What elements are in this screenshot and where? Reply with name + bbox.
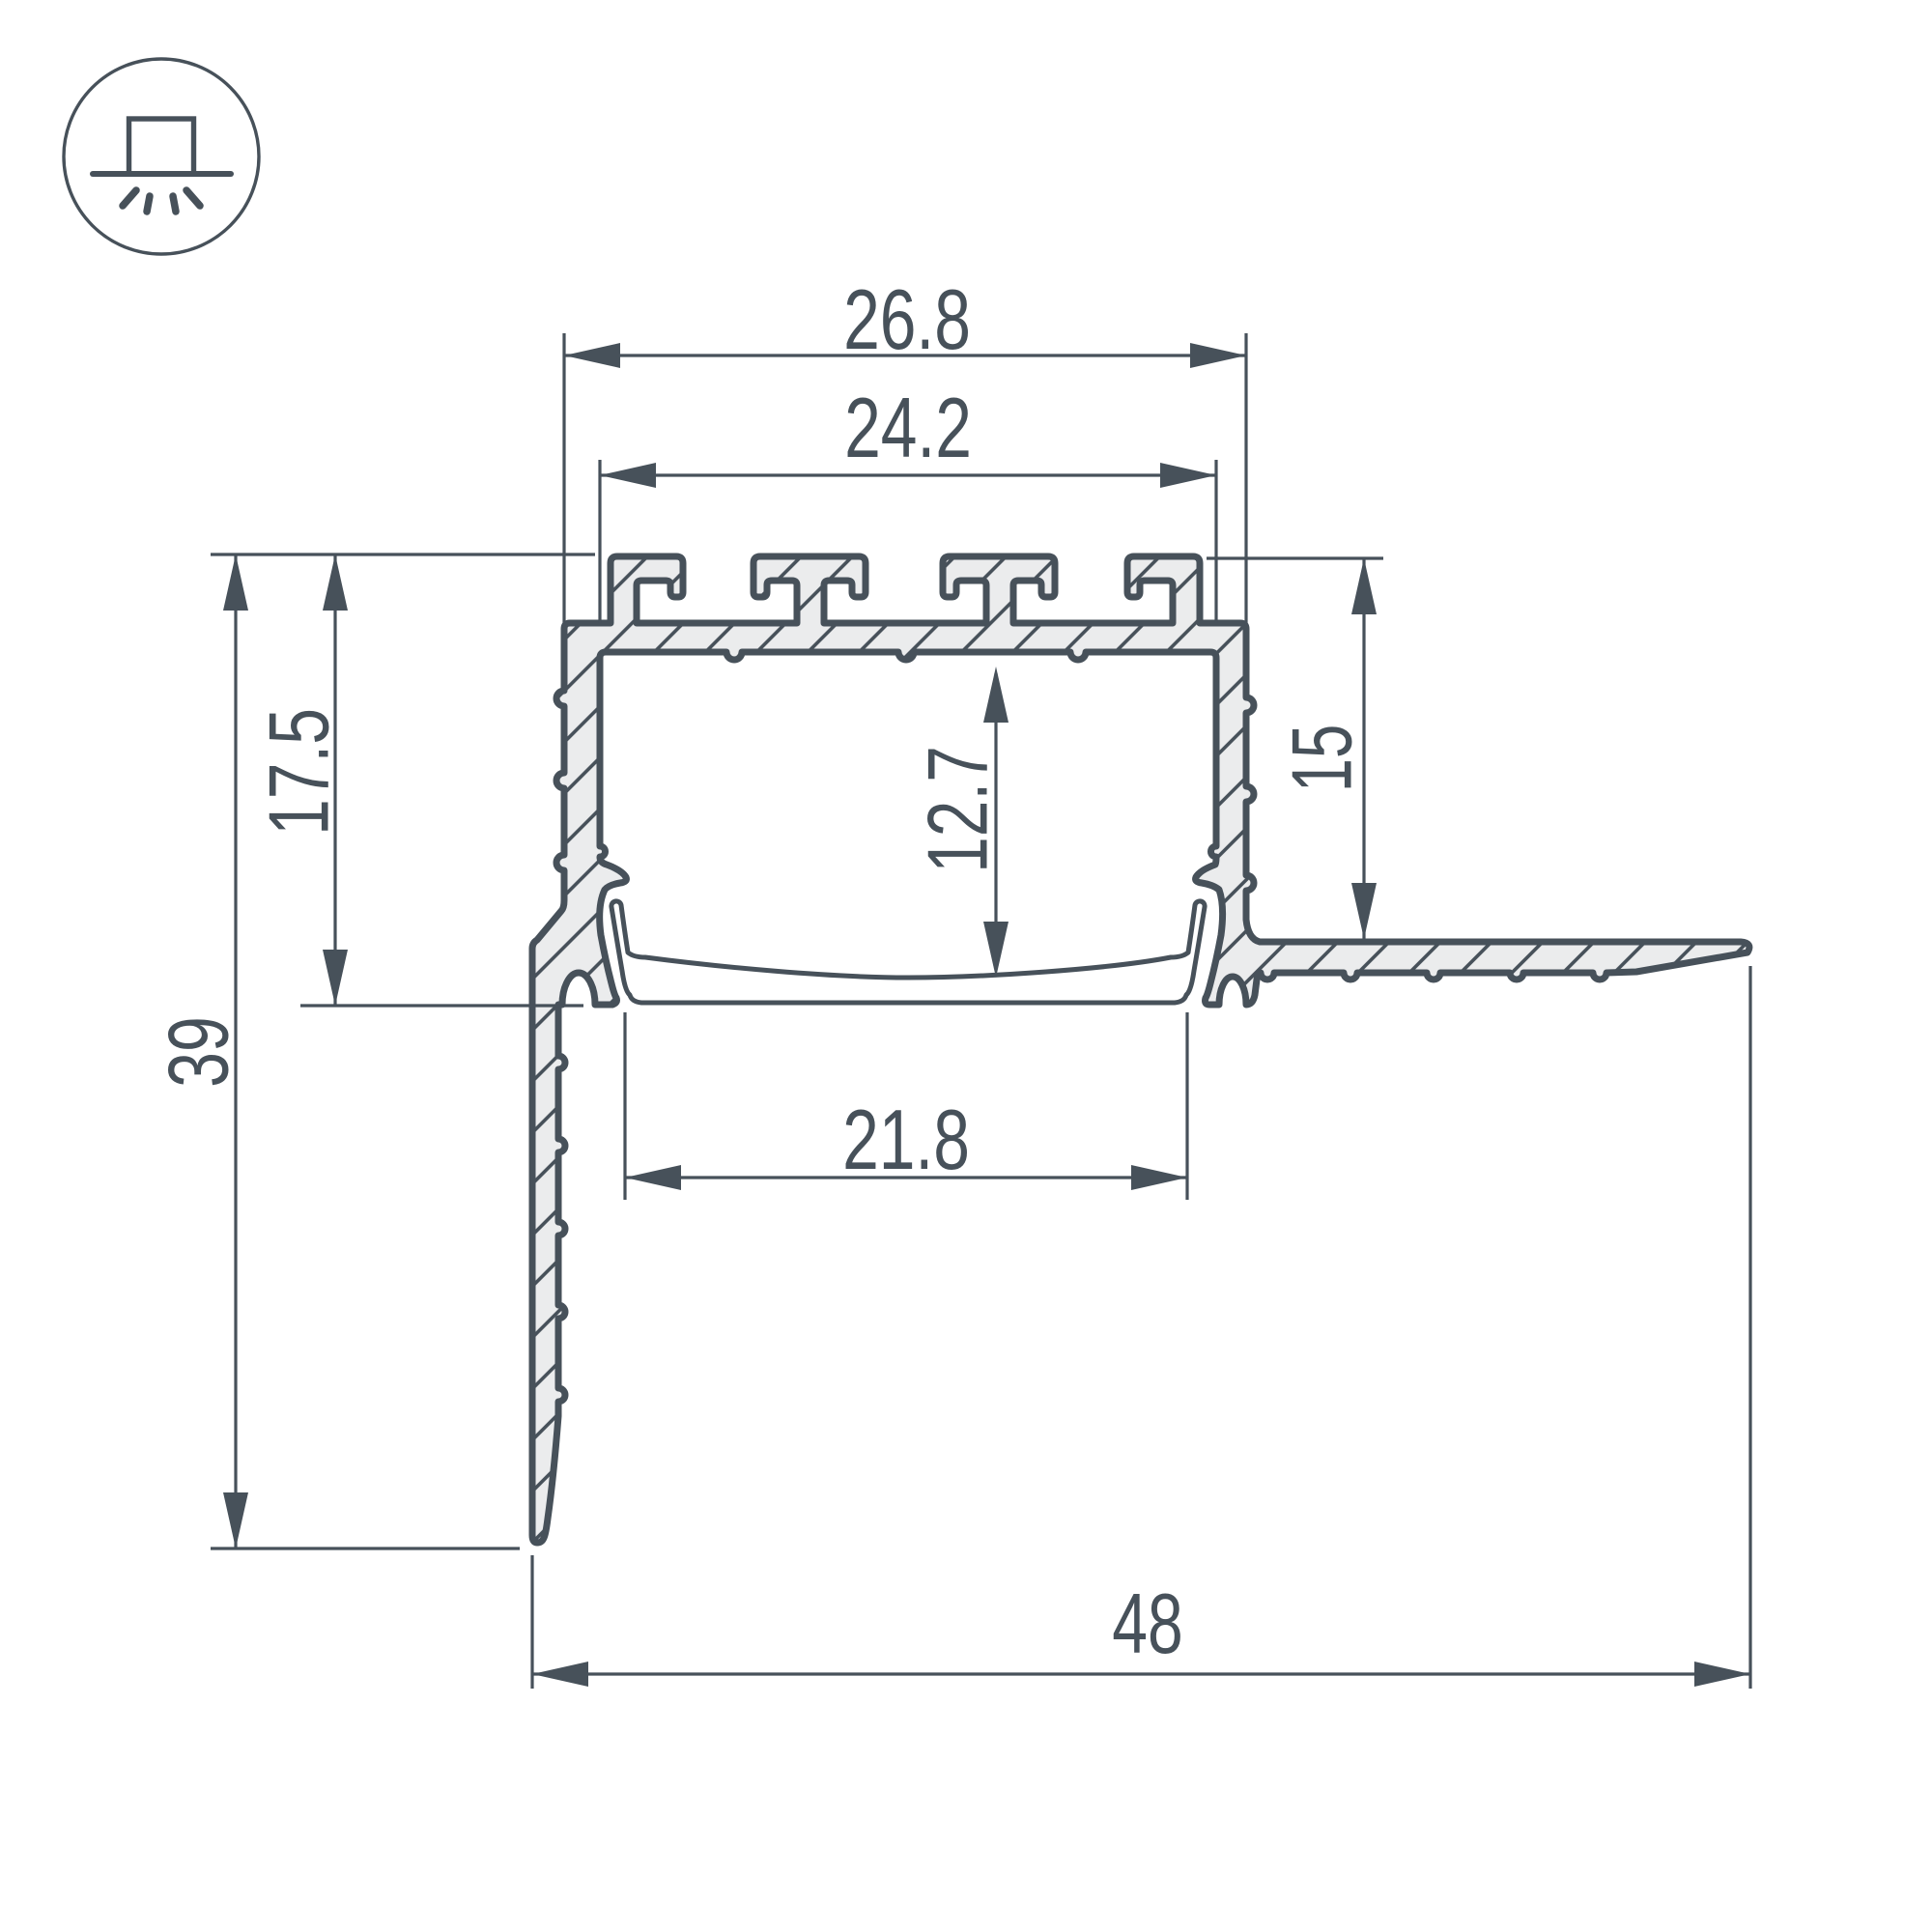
- svg-text:17.5: 17.5: [251, 708, 347, 836]
- svg-text:39: 39: [152, 1016, 245, 1087]
- svg-text:15: 15: [1275, 724, 1370, 792]
- svg-text:26.8: 26.8: [843, 271, 971, 367]
- svg-text:48: 48: [1112, 1577, 1182, 1671]
- svg-text:24.2: 24.2: [844, 380, 972, 475]
- svg-text:21.8: 21.8: [842, 1092, 970, 1187]
- svg-text:12.7: 12.7: [910, 746, 1006, 873]
